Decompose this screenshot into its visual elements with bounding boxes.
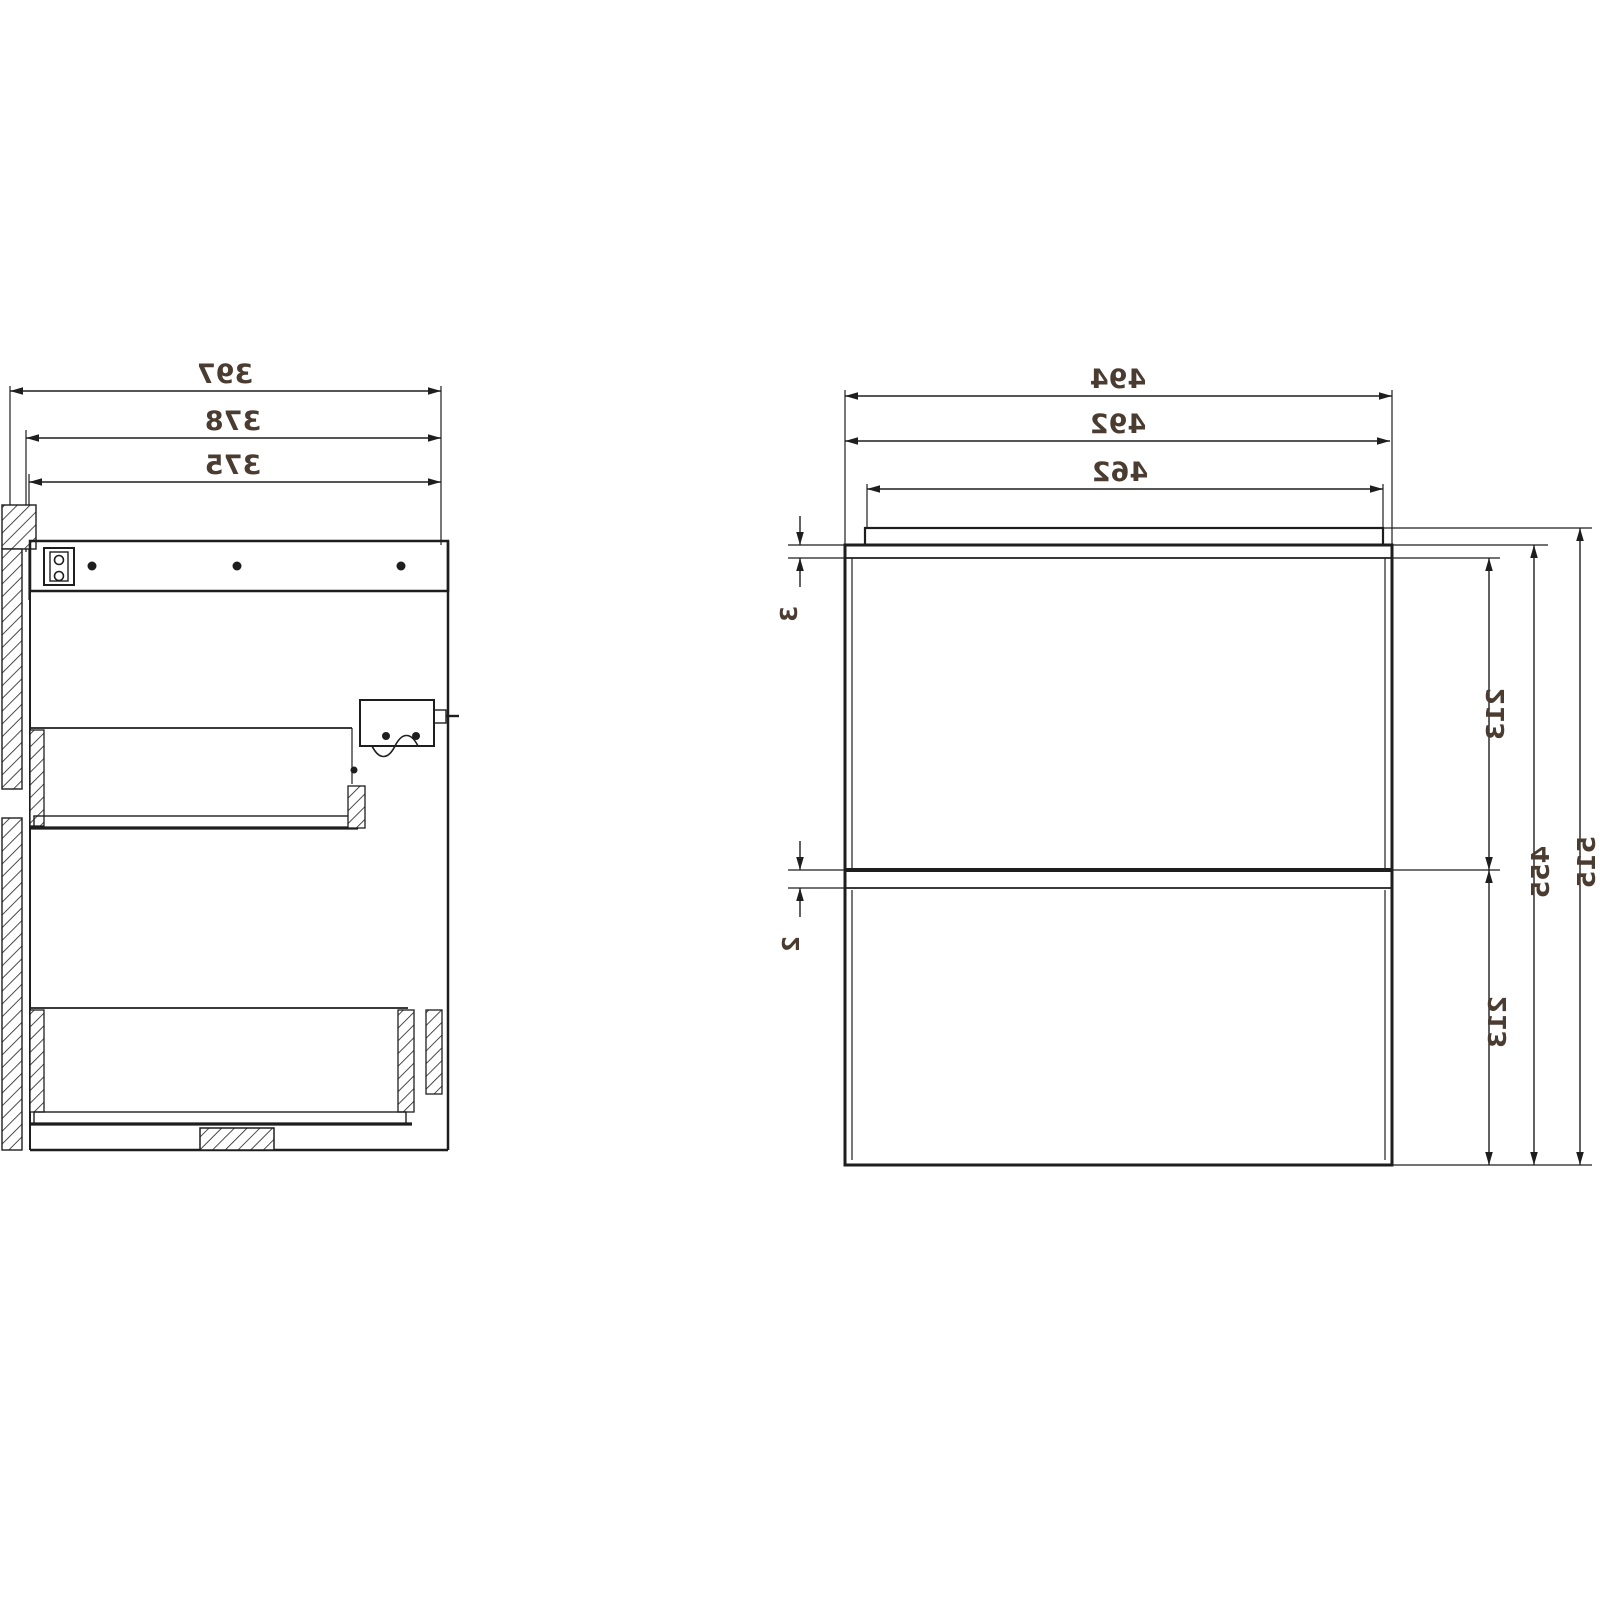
dim-label-drawer-gap: 2 bbox=[779, 936, 805, 952]
dim-label-total-height: 515 bbox=[1572, 836, 1600, 888]
canvas-background bbox=[0, 0, 1600, 1600]
lower-drawer-back-panel bbox=[30, 1010, 44, 1112]
lower-drawer-front-section bbox=[426, 1010, 442, 1094]
dim-label-top-panel-width: 462 bbox=[1092, 457, 1148, 488]
dim-label-bottom-drawer-height: 213 bbox=[1483, 996, 1512, 1048]
upper-drawer-back-panel bbox=[30, 730, 44, 826]
dim-label-top-drawer-height: 213 bbox=[1481, 688, 1510, 740]
dim-label-inner-depth: 375 bbox=[205, 450, 261, 481]
lower-drawer-front-rail bbox=[398, 1010, 414, 1112]
dim-label-carcass-width: 492 bbox=[1090, 409, 1146, 440]
vanity-cabinet-drawing: 397 378 375 bbox=[0, 0, 1600, 1600]
dim-label-carcass-height: 455 bbox=[1526, 846, 1555, 898]
upper-drawer-front-section bbox=[348, 786, 365, 828]
technical-drawing-page: 397 378 375 bbox=[0, 0, 1600, 1600]
dim-label-overall-width: 494 bbox=[1090, 364, 1146, 395]
dim-label-body-depth: 378 bbox=[205, 406, 261, 437]
dim-label-top-reveal: 3 bbox=[777, 606, 803, 622]
floor-pad-section bbox=[200, 1128, 274, 1150]
dim-label-overall-depth: 397 bbox=[197, 359, 253, 390]
